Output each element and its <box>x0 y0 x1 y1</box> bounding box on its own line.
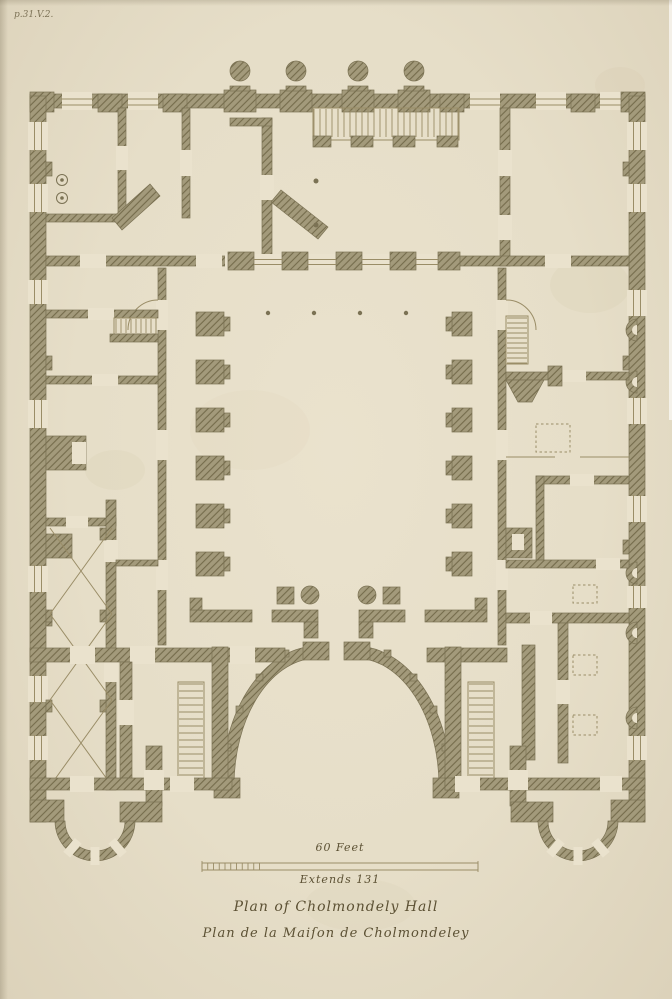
portico-column <box>230 61 250 81</box>
north-range-rooms <box>46 108 512 266</box>
courtyard-side-walls <box>128 268 536 645</box>
east-wing-rooms <box>506 316 629 763</box>
vestibule-screen <box>190 586 487 638</box>
quadrant-wall-east <box>355 646 451 786</box>
grand-staircase <box>313 108 459 147</box>
plan-title-french: Plan de la Maiſon de Cholmondeley <box>136 926 536 941</box>
plan-title-english: Plan of Cholmondely Hall <box>136 899 536 915</box>
south-range-east <box>427 647 645 806</box>
screen-column <box>358 586 376 604</box>
corner-bow-pavilions <box>30 800 645 865</box>
east-outer-wall <box>623 96 647 822</box>
scale-bar-label: 60 Feet <box>240 841 440 854</box>
courtyard-piers-east <box>446 312 472 576</box>
quadrant-wall-west <box>222 646 318 786</box>
bow-pavilion-east <box>511 800 645 865</box>
portico-columns <box>230 61 424 81</box>
portico-column <box>286 61 306 81</box>
plate-reference: p.31.V.2. <box>14 10 53 20</box>
west-wing-rooms <box>46 308 158 790</box>
courtyard-north-wall <box>46 252 629 270</box>
paper-stains <box>85 67 645 931</box>
engraving-plate: p.31.V.2. 60 Feet Extends 131 Plan of Ch… <box>0 0 672 999</box>
bow-pavilion-west <box>30 800 162 865</box>
screen-column <box>301 586 319 604</box>
quadrant-walls <box>214 642 459 798</box>
portico-column <box>404 61 424 81</box>
extent-label: Extends 131 <box>240 873 440 886</box>
scale-bar <box>202 861 478 872</box>
portico-column <box>348 61 368 81</box>
